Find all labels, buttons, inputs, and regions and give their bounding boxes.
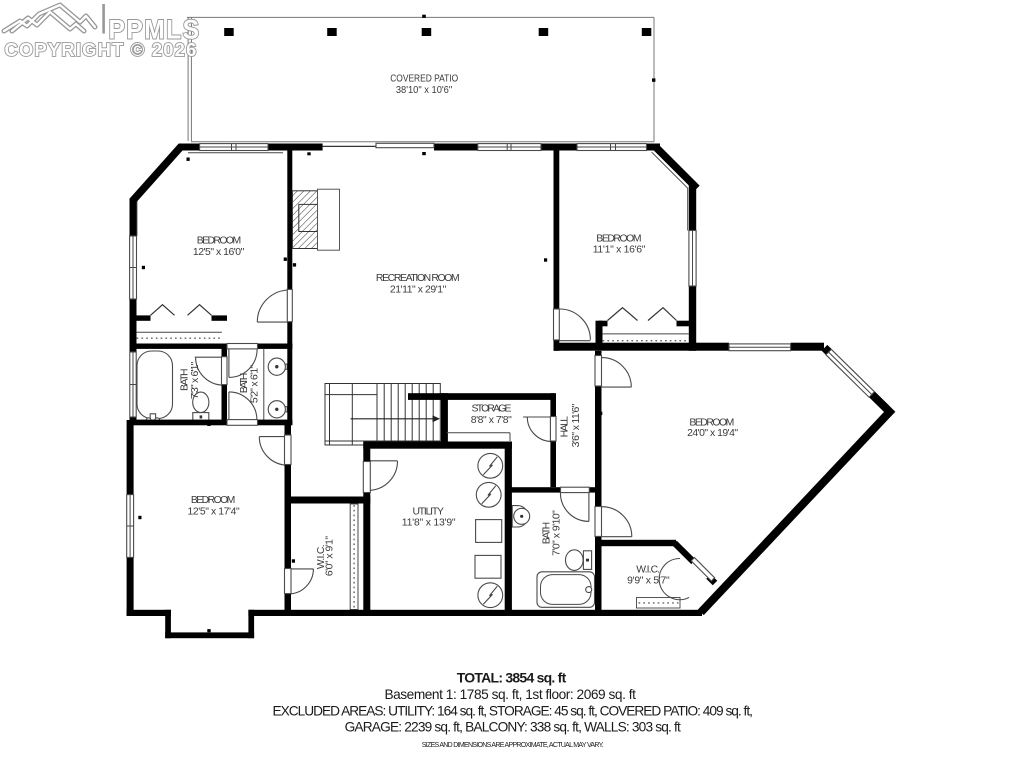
svg-text:12'5" x 17'4": 12'5" x 17'4" xyxy=(188,506,240,517)
svg-text:UTILITY: UTILITY xyxy=(412,507,444,518)
svg-text:5'2" x 6'1": 5'2" x 6'1" xyxy=(250,365,261,403)
svg-text:21'11" x 29'1": 21'11" x 29'1" xyxy=(390,284,447,295)
svg-text:BEDROOM: BEDROOM xyxy=(191,495,235,506)
svg-text:BEDROOM: BEDROOM xyxy=(596,233,641,244)
svg-text:STORAGE: STORAGE xyxy=(472,404,512,415)
svg-text:BATH: BATH xyxy=(239,373,250,394)
svg-text:COPYRIGHT © 2026: COPYRIGHT © 2026 xyxy=(5,39,198,60)
svg-text:SIZES AND DIMENSIONS ARE APPRO: SIZES AND DIMENSIONS ARE APPROXIMATE, AC… xyxy=(422,742,604,749)
svg-text:GARAGE: 2239 sq. ft, BALCONY:: GARAGE: 2239 sq. ft, BALCONY: 338 sq. ft… xyxy=(345,720,681,735)
svg-text:BEDROOM: BEDROOM xyxy=(689,418,734,429)
svg-text:3'6" x 11'6": 3'6" x 11'6" xyxy=(571,403,582,447)
svg-text:12'5" x 16'0": 12'5" x 16'0" xyxy=(193,247,245,258)
svg-text:24'0" x 19'4": 24'0" x 19'4" xyxy=(687,428,738,439)
svg-text:38'10" x 10'6": 38'10" x 10'6" xyxy=(396,85,453,96)
svg-text:BEDROOM: BEDROOM xyxy=(197,235,241,246)
svg-text:6'0" x 9'1": 6'0" x 9'1" xyxy=(324,536,335,577)
svg-text:COVERED PATIO: COVERED PATIO xyxy=(390,73,458,84)
svg-text:7'3" x 6'1": 7'3" x 6'1" xyxy=(190,361,201,399)
svg-text:9'9" x 5'7": 9'9" x 5'7" xyxy=(627,575,670,586)
svg-text:HALL: HALL xyxy=(559,416,570,438)
svg-text:EXCLUDED AREAS: UTILITY: 164 s: EXCLUDED AREAS: UTILITY: 164 sq. ft, STO… xyxy=(272,704,753,719)
svg-text:8'8" x 7'8": 8'8" x 7'8" xyxy=(471,415,512,426)
svg-text:RECREATION ROOM: RECREATION ROOM xyxy=(376,273,460,284)
svg-text:11'8" x 13'9": 11'8" x 13'9" xyxy=(402,517,456,528)
svg-text:11'1" x 16'6": 11'1" x 16'6" xyxy=(593,244,646,255)
svg-text:7'0" x 9'10": 7'0" x 9'10" xyxy=(551,510,562,556)
svg-text:Basement 1: 1785 sq. ft, 1st f: Basement 1: 1785 sq. ft, 1st floor: 2069… xyxy=(384,687,636,702)
svg-text:TOTAL: 3854 sq. ft: TOTAL: 3854 sq. ft xyxy=(457,670,567,686)
svg-text:W.I.C.: W.I.C. xyxy=(636,564,660,575)
